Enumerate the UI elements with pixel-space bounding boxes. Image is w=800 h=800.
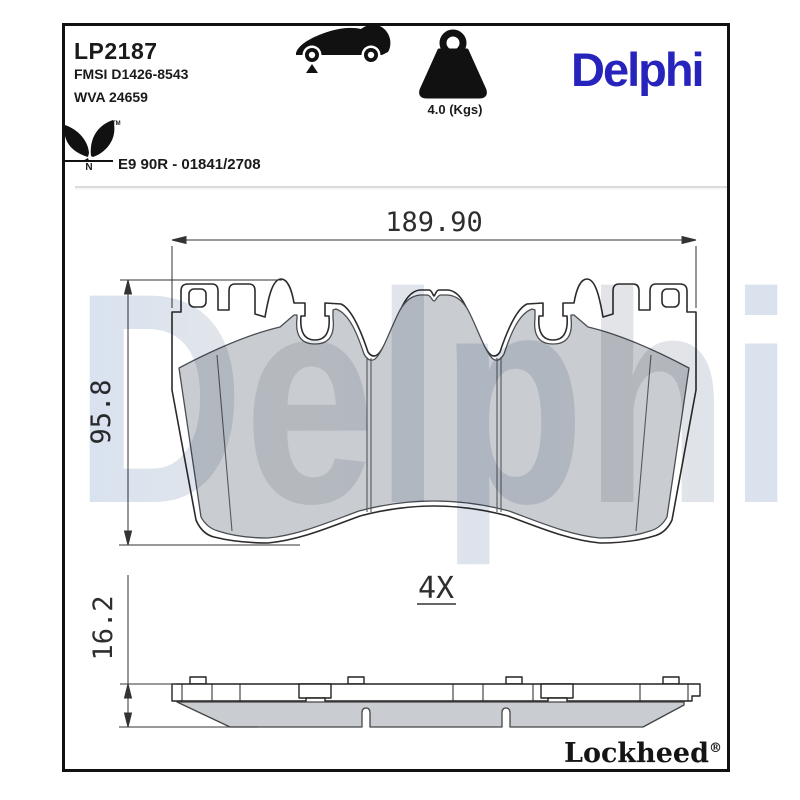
shim-tab — [506, 677, 522, 684]
delphi-watermark: Delphi — [74, 230, 794, 568]
eco-leaf-icon — [64, 120, 114, 161]
technical-drawing: 189.90 95.8 16.2 4X Delphi — [0, 0, 800, 800]
backplate-side — [172, 684, 700, 701]
clip-detail — [541, 684, 573, 698]
shim-tab — [663, 677, 679, 684]
friction-side — [177, 702, 684, 727]
shim-tab — [348, 677, 364, 684]
clip-detail — [299, 684, 331, 698]
pad-side-view — [172, 677, 700, 727]
dim-thickness: 16.2 — [88, 595, 119, 660]
weight-icon — [421, 33, 486, 97]
car-icon — [296, 25, 390, 73]
quantity-label: 4X — [418, 571, 454, 606]
shim-tab — [190, 677, 206, 684]
datasheet-page: LP2187 FMSI D1426-8543 WVA 24659 Delphi … — [0, 0, 800, 800]
front-axle-arrow-icon — [306, 64, 318, 73]
